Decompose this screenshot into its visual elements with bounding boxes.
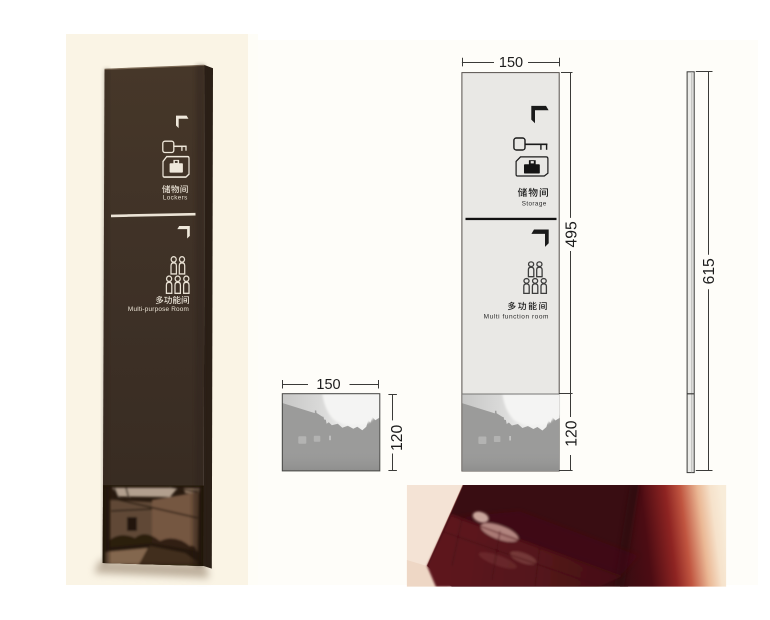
svg-text:150: 150 [499,55,523,71]
svg-text:Lockers: Lockers [163,194,188,201]
svg-text:615: 615 [701,258,718,284]
svg-text:120: 120 [563,420,580,446]
svg-text:Storage: Storage [522,201,547,208]
svg-text:495: 495 [563,221,580,247]
svg-text:120: 120 [389,425,406,451]
svg-text:Multi function room: Multi function room [484,314,549,321]
svg-text:150: 150 [316,377,340,393]
svg-text:Multi-purpose Room: Multi-purpose Room [128,306,189,313]
